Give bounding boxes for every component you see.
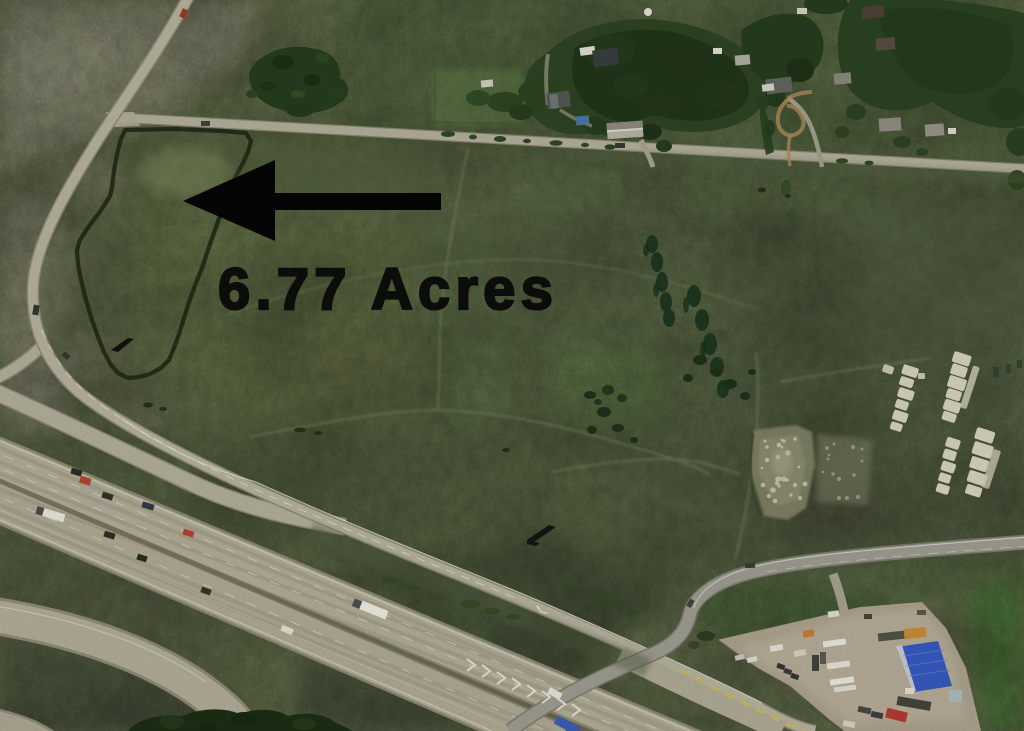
svg-text:6.77 Acres: 6.77 Acres: [218, 257, 558, 322]
